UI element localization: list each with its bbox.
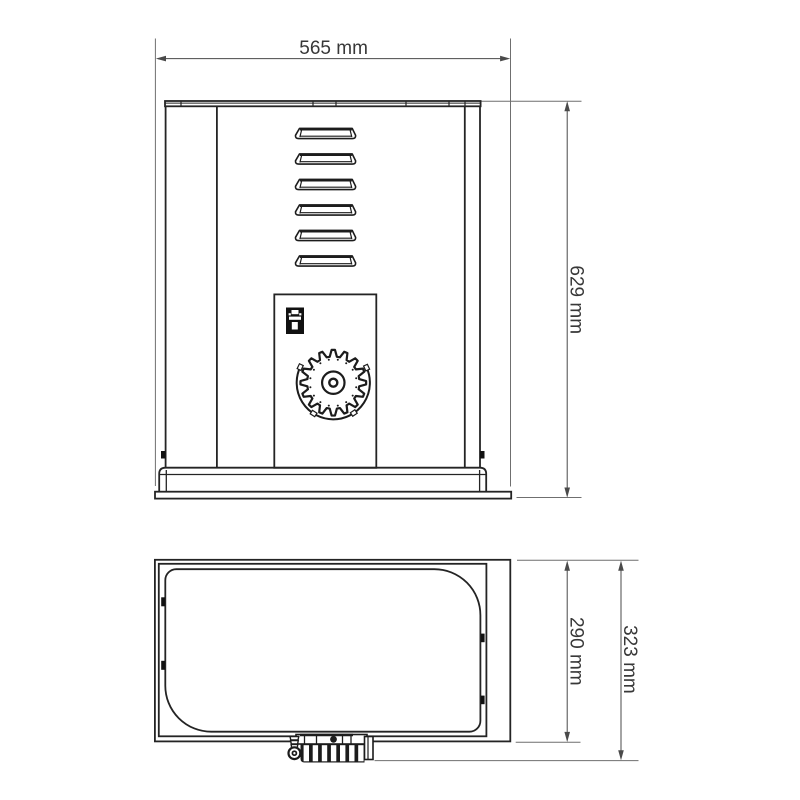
svg-text:629 mm: 629 mm xyxy=(566,265,587,334)
svg-text:290 mm: 290 mm xyxy=(566,617,587,686)
svg-text:323 mm: 323 mm xyxy=(619,625,640,694)
svg-text:565 mm: 565 mm xyxy=(299,38,368,59)
